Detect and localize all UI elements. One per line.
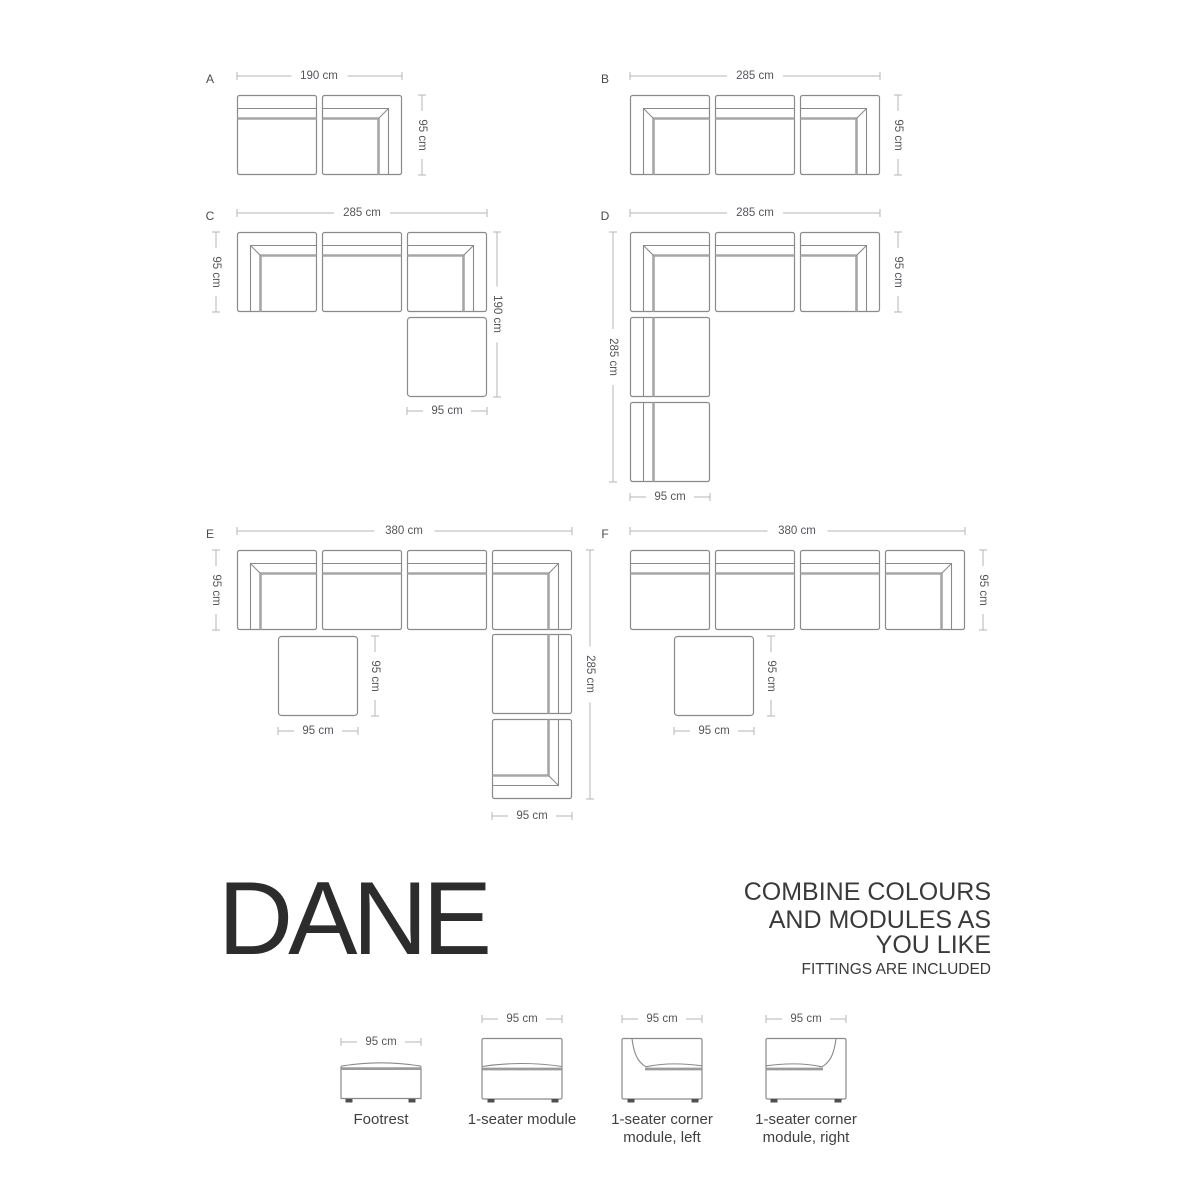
- config-c-depth-dimension: 190 cm: [491, 232, 503, 397]
- module-footrest: [675, 637, 754, 716]
- config-c-label: C: [206, 209, 215, 223]
- branding: DANE COMBINE COLOURS AND MODULES AS YOU …: [218, 861, 991, 978]
- dimension-label: 285 cm: [736, 207, 774, 219]
- dimension-label: 95 cm: [892, 119, 904, 150]
- dimension-label: 95 cm: [210, 574, 222, 605]
- dimension-label: 380 cm: [778, 525, 816, 537]
- config-e-footrest-bottom-dimension: 95 cm: [278, 725, 358, 737]
- dimension-label: 190 cm: [491, 295, 503, 333]
- dimension-label: 285 cm: [343, 207, 381, 219]
- tagline-line-3: YOU LIKE: [876, 931, 991, 959]
- dimension-label: 95 cm: [416, 119, 428, 150]
- config-d-depth-dimension: 285 cm: [607, 232, 619, 482]
- seater-label: 1-seater module: [468, 1111, 576, 1128]
- module-corner-right: [886, 551, 965, 630]
- config-e-width-dimension: 380 cm: [237, 525, 572, 537]
- dimension-label: 95 cm: [210, 256, 222, 287]
- tagline-line-2: AND MODULES AS: [769, 906, 991, 934]
- module-corner-right: [408, 233, 487, 312]
- dimension-label: 190 cm: [300, 70, 338, 82]
- tagline-line-1: COMBINE COLOURS: [744, 878, 991, 906]
- dimension-label: 95 cm: [365, 1036, 396, 1048]
- module-1-seater: [801, 551, 880, 630]
- dimension-label: 95 cm: [646, 1013, 677, 1025]
- dimension-label: 285 cm: [584, 655, 596, 693]
- module-1-seater: [238, 96, 317, 175]
- footrest-foot-right: [409, 1099, 416, 1103]
- module-1-seater: [323, 233, 402, 312]
- module-corner-right: [801, 96, 880, 175]
- product-sheet: A 190 cm 95 cm B 285 cm 95 cm C 285 cm: [0, 0, 1200, 1200]
- seater-foot-right: [552, 1099, 559, 1103]
- config-f-width-dimension: 380 cm: [630, 525, 965, 537]
- fittings-note: FITTINGS ARE INCLUDED: [802, 961, 991, 978]
- config-a-width-dimension: 190 cm: [237, 70, 402, 82]
- config-e-depth-dimension: 285 cm: [584, 550, 596, 799]
- config-f-height-dimension: 95 cm: [977, 550, 989, 630]
- module-1-seater-rotated: [631, 403, 710, 482]
- corner-left-foot-left: [628, 1099, 635, 1103]
- dimension-label: 95 cm: [977, 574, 989, 605]
- seater-foot-left: [488, 1099, 495, 1103]
- config-b-height-dimension: 95 cm: [892, 95, 904, 175]
- configuration-b: B 285 cm 95 cm: [601, 70, 904, 175]
- module-1-seater: [631, 551, 710, 630]
- legend-footrest: 95 cm Footrest: [341, 1036, 421, 1128]
- dimension-label: 285 cm: [736, 70, 774, 82]
- config-c-width-dimension: 285 cm: [237, 207, 487, 219]
- config-e-label: E: [206, 527, 214, 541]
- config-d-width-dimension: 285 cm: [630, 207, 880, 219]
- config-d-height-dimension: 95 cm: [892, 232, 904, 312]
- footrest-foot-left: [346, 1099, 353, 1103]
- module-1-seater: [716, 551, 795, 630]
- configuration-a: A 190 cm 95 cm: [206, 70, 428, 175]
- dimension-label: 95 cm: [431, 405, 462, 417]
- dimension-label: 95 cm: [698, 725, 729, 737]
- config-e-left-dimension: 95 cm: [210, 550, 222, 630]
- legend-corner-right: 95 cm 1-seater corner module, right: [755, 1013, 857, 1146]
- corner-left-foot-right: [692, 1099, 699, 1103]
- dimension-label: 95 cm: [302, 725, 333, 737]
- module-1-seater: [716, 96, 795, 175]
- module-corner-left: [631, 96, 710, 175]
- corner-right-label-line2: module, right: [763, 1129, 851, 1146]
- footrest-cushion-top: [341, 1063, 421, 1066]
- config-a-label: A: [206, 72, 214, 86]
- config-d-label: D: [601, 209, 610, 223]
- config-e-footrest-side-dimension: 95 cm: [369, 636, 381, 716]
- dimension-label: 95 cm: [765, 660, 777, 691]
- corner-right-foot-right: [835, 1099, 842, 1103]
- configuration-c: C 285 cm 95 cm 190 cm 95 cm: [206, 207, 503, 417]
- module-1-seater-rotated: [493, 635, 572, 714]
- dimension-label: 95 cm: [654, 491, 685, 503]
- config-b-width-dimension: 285 cm: [630, 70, 880, 82]
- module-1-seater: [408, 551, 487, 630]
- seater-dimension: 95 cm: [482, 1013, 562, 1025]
- module-corner-right: [493, 551, 572, 630]
- dimension-label: 95 cm: [506, 1013, 537, 1025]
- configuration-f: F 380 cm 95 cm 95 cm 95 cm: [601, 525, 989, 737]
- module-footrest: [279, 637, 358, 716]
- configuration-e: E 380 cm 95 cm 95 cm 95 cm 285 cm 95 cm: [206, 525, 596, 822]
- module-1-seater: [716, 233, 795, 312]
- dane-module-diagram: A 190 cm 95 cm B 285 cm 95 cm C 285 cm: [0, 0, 1200, 1200]
- module-1-seater: [323, 551, 402, 630]
- config-e-bottom-right-dimension: 95 cm: [492, 810, 572, 822]
- legend-corner-left: 95 cm 1-seater corner module, left: [611, 1013, 713, 1146]
- config-a-height-dimension: 95 cm: [416, 95, 428, 175]
- product-title: DANE: [218, 861, 488, 977]
- corner-left-dimension: 95 cm: [622, 1013, 702, 1025]
- dimension-label: 95 cm: [369, 660, 381, 691]
- module-corner-left: [238, 233, 317, 312]
- module-corner-right: [323, 96, 402, 175]
- module-1-seater-rotated: [631, 318, 710, 397]
- dimension-label: 380 cm: [385, 525, 423, 537]
- module-corner-right: [801, 233, 880, 312]
- module-legend: 95 cm Footrest 95 cm 1-seater module 95 …: [341, 1013, 857, 1146]
- footrest-label: Footrest: [353, 1111, 409, 1128]
- config-d-bottom-dimension: 95 cm: [630, 491, 710, 503]
- configuration-d: D 285 cm 285 cm 95 cm 95 cm: [601, 207, 904, 503]
- module-footrest: [408, 318, 487, 397]
- config-f-footrest-side-dimension: 95 cm: [765, 636, 777, 716]
- config-b-label: B: [601, 72, 609, 86]
- config-f-label: F: [601, 527, 608, 541]
- config-f-footrest-bottom-dimension: 95 cm: [674, 725, 754, 737]
- corner-right-label-line1: 1-seater corner: [755, 1111, 857, 1128]
- footrest-body: [341, 1067, 421, 1099]
- module-corner-rotated: [493, 720, 572, 799]
- dimension-label: 95 cm: [790, 1013, 821, 1025]
- config-c-left-dimension: 95 cm: [210, 232, 222, 312]
- module-corner-left: [631, 233, 710, 312]
- config-c-footrest-dimension: 95 cm: [407, 405, 487, 417]
- corner-left-label-line2: module, left: [623, 1129, 701, 1146]
- corner-left-label-line1: 1-seater corner: [611, 1111, 713, 1128]
- corner-right-foot-left: [771, 1099, 778, 1103]
- module-corner-left: [238, 551, 317, 630]
- dimension-label: 95 cm: [516, 810, 547, 822]
- legend-1-seater: 95 cm 1-seater module: [468, 1013, 576, 1128]
- dimension-label: 285 cm: [607, 338, 619, 376]
- footrest-dimension: 95 cm: [341, 1036, 421, 1048]
- dimension-label: 95 cm: [892, 256, 904, 287]
- corner-right-dimension: 95 cm: [766, 1013, 846, 1025]
